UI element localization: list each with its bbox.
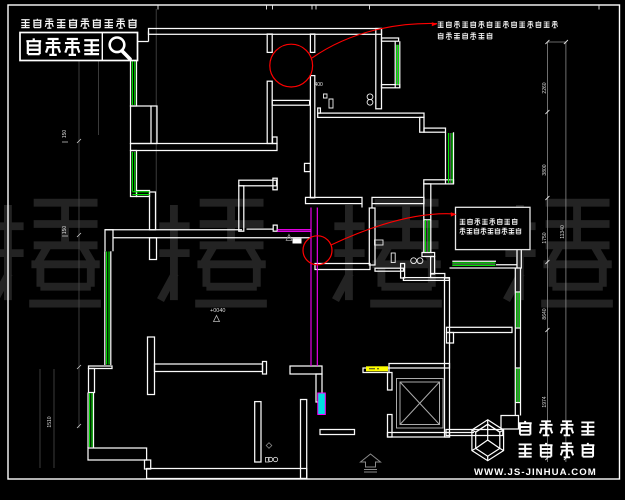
svg-text:8640: 8640	[542, 308, 548, 319]
svg-text:3800: 3800	[542, 164, 548, 175]
svg-text:1974: 1974	[542, 396, 548, 407]
svg-text:11340: 11340	[560, 225, 566, 239]
svg-text:400: 400	[315, 82, 324, 88]
svg-text:150: 150	[62, 226, 68, 235]
svg-text:WWW.JS-JINHUA.COM: WWW.JS-JINHUA.COM	[474, 467, 597, 478]
svg-text:1750: 1750	[542, 232, 548, 243]
svg-text:150: 150	[62, 130, 68, 139]
svg-text:+0040: +0040	[210, 308, 225, 314]
svg-text:2260: 2260	[542, 82, 548, 93]
svg-text:1510: 1510	[47, 416, 53, 427]
